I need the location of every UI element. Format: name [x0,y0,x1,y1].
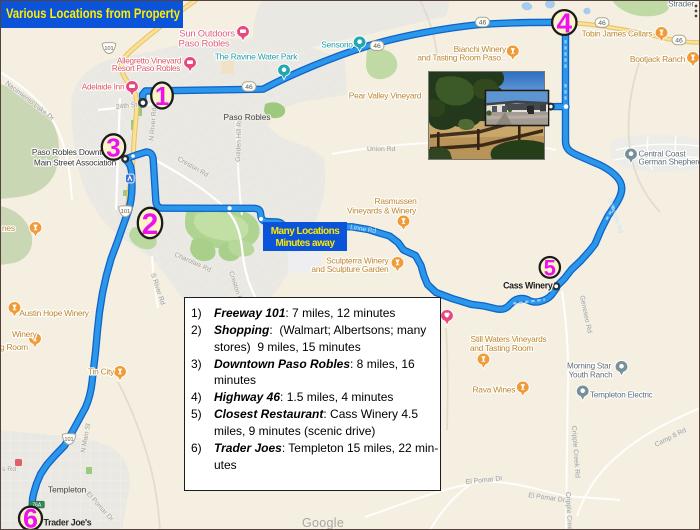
svg-text:Union Rd: Union Rd [367,146,396,153]
svg-text:Templeton Electric: Templeton Electric [590,391,653,400]
svg-text:4: 4 [557,8,573,39]
svg-text:6: 6 [23,503,38,530]
svg-text:3: 3 [106,133,120,163]
svg-text:s Rd: s Rd [2,466,16,473]
svg-text:Main Street Association: Main Street Association [34,158,117,168]
svg-text:46: 46 [479,19,487,26]
svg-text:Morning Star: Morning Star [567,362,611,371]
svg-text:Templeton: Templeton [48,485,87,495]
svg-text:Tobin James Cellars: Tobin James Cellars [582,29,653,39]
svg-text:46: 46 [598,20,606,27]
svg-text:Bootjack Ranch: Bootjack Ranch [630,54,686,64]
svg-text:Sensorio: Sensorio [321,40,353,50]
svg-text:The Ravine Water Park: The Ravine Water Park [215,52,299,62]
svg-text:46: 46 [373,43,381,50]
svg-text:Resort Paso Robles: Resort Paso Robles [112,64,180,73]
svg-text:101: 101 [104,46,113,52]
svg-text:1: 1 [155,81,169,111]
svg-text:Adelaide Inn: Adelaide Inn [82,83,125,92]
svg-text:Rasmussen: Rasmussen [375,196,418,206]
svg-text:46: 46 [675,37,683,44]
svg-text:and Tasting Room: and Tasting Room [470,343,534,353]
svg-text:101: 101 [121,209,130,215]
svg-text:Vineyards & Winery: Vineyards & Winery [347,206,417,216]
svg-text:Rava Wines: Rava Wines [473,385,516,395]
svg-text:g Room: g Room [0,342,28,352]
svg-text:German Shepherd...: German Shepherd... [639,158,700,167]
svg-text:Youth Ranch: Youth Ranch [569,371,613,380]
svg-text:Cass Winery: Cass Winery [503,281,553,291]
svg-text:5: 5 [544,255,556,280]
svg-text:and Sculpture Garden: and Sculpture Garden [311,264,389,274]
svg-text:Austin Hope Winery: Austin Hope Winery [19,308,90,318]
svg-text:Winery: Winery [12,329,38,339]
svg-text:Paso Robles: Paso Robles [179,38,230,49]
svg-text:Tin City: Tin City [88,367,115,377]
svg-text:nes: nes [2,223,15,233]
svg-text:Pear Valley Vineyard: Pear Valley Vineyard [349,91,422,101]
svg-text:Paso Robles: Paso Robles [224,112,271,122]
svg-text:2: 2 [142,208,159,241]
svg-text:46: 46 [245,84,253,91]
svg-text:101: 101 [64,437,73,443]
svg-text:Strader: Strader [668,0,694,9]
svg-text:and Tasting Room Paso...: and Tasting Room Paso... [417,53,507,63]
svg-text:Trader Joe's: Trader Joe's [44,518,92,528]
